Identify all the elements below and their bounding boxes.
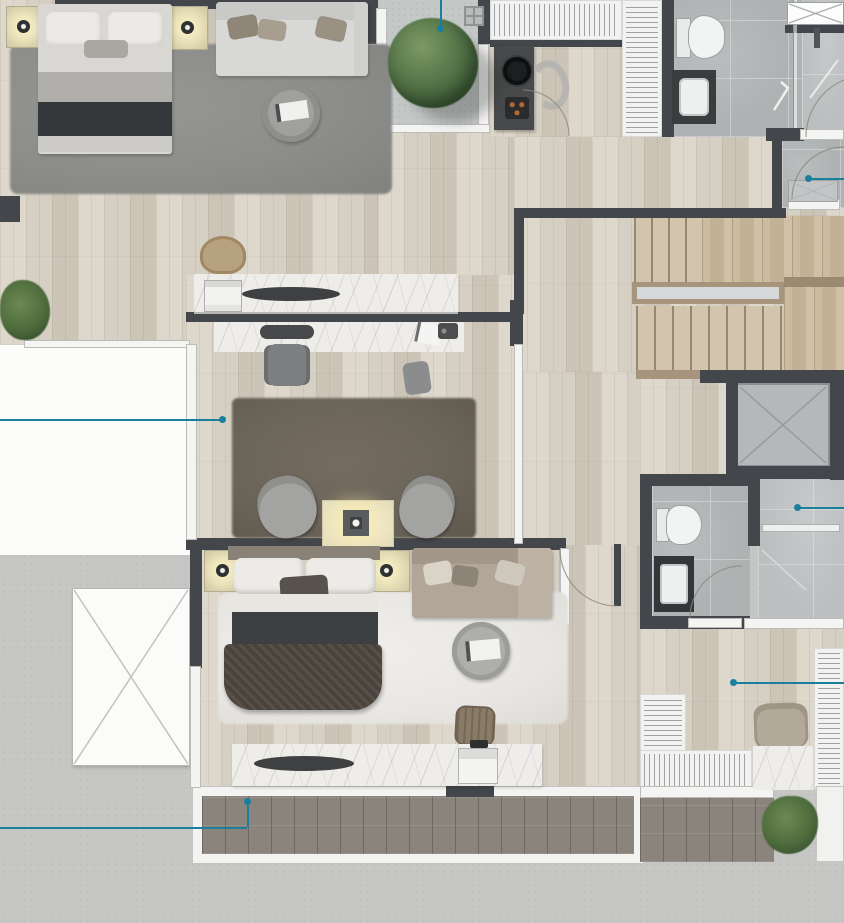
toilet-bowl-bath-1 xyxy=(688,15,725,59)
washbasin-bath-1 xyxy=(679,78,709,116)
balcony-2-white-ledge xyxy=(816,786,844,862)
closet-2-horiz-rack xyxy=(640,750,752,790)
stair-railing-right xyxy=(784,277,844,287)
void-white-area xyxy=(0,345,190,555)
table-lamp-bedroom-2 xyxy=(343,510,369,536)
wall-shelf-top-right xyxy=(787,2,844,25)
callout-hotspot-balcony-bedroom-3[interactable] xyxy=(244,798,251,805)
wall-elevator-top xyxy=(700,370,844,383)
window-bedroom-2-left xyxy=(186,344,197,540)
desk-chair-bedroom-2 xyxy=(268,344,306,386)
bed-3-mattress-band xyxy=(232,612,378,646)
elevator-lobby-floor xyxy=(640,372,738,476)
callout-hotspot-planter-terrace[interactable] xyxy=(437,25,444,32)
wall-bedroom-3-left xyxy=(190,542,202,668)
callout-hotspot-walk-in-closet-2[interactable] xyxy=(730,679,737,686)
window-bedroom-3-left xyxy=(190,666,201,788)
table-lamp-icon xyxy=(181,21,194,34)
wall-elevator-right xyxy=(830,370,844,480)
floor-drain-terrace xyxy=(464,6,484,26)
hanging-clothes-icon xyxy=(818,652,840,784)
stair-upper-landing xyxy=(702,216,844,286)
bed-1-foot-band xyxy=(38,136,172,152)
callout-hotspot-bedroom-2[interactable] xyxy=(219,416,226,423)
side-chair-bedroom-2 xyxy=(402,360,432,395)
closet-2-right-rack xyxy=(814,648,844,788)
appliance-hall-counter xyxy=(204,280,242,312)
stair-glass-railing xyxy=(632,282,784,304)
cup-tray-closet-1 xyxy=(505,97,529,119)
bathroom-2-shower-floor xyxy=(758,474,844,620)
stair-upper-flight xyxy=(634,216,702,284)
hanging-clothes-icon xyxy=(626,4,658,133)
door-leaf-bedroom-3 xyxy=(614,544,621,606)
shower-bar-bath-2 xyxy=(762,524,840,532)
window-balcony-bottom xyxy=(380,124,490,133)
sofa-1-arm-right xyxy=(354,2,368,76)
sill-shower-2-bottom xyxy=(744,618,844,629)
hanging-clothes-icon xyxy=(494,4,618,36)
wall-bedroom-2-corner xyxy=(510,300,523,346)
wall-elevator-left xyxy=(726,383,738,471)
door-sill-bathroom-2 xyxy=(688,618,742,628)
stair-lower-flight xyxy=(636,306,784,372)
sofa-3-chaise xyxy=(518,548,552,618)
rattan-chair-hall xyxy=(200,236,246,274)
table-lamp-icon xyxy=(380,564,393,577)
nightstand-lamp-left-b1 xyxy=(6,6,42,48)
vanity-sink-bedroom-2 xyxy=(260,325,314,339)
corridor-floor xyxy=(523,372,640,550)
shower-tray-gray-room xyxy=(788,180,838,202)
elevator-cab xyxy=(736,383,830,467)
floor-plan-canvas xyxy=(0,0,844,923)
wall-left-stub xyxy=(0,196,20,222)
wall-hall-vertical xyxy=(514,208,524,314)
hanging-clothes-icon xyxy=(644,754,748,786)
bed-1-duvet xyxy=(38,72,172,104)
coffee-table-3-book xyxy=(465,639,501,662)
closet-1-side-rack xyxy=(622,0,662,137)
perfume-bottles-bedroom-2 xyxy=(438,323,458,339)
window-void-top xyxy=(24,340,190,348)
serving-tray-hall xyxy=(242,287,340,301)
wall-stair-hall-top xyxy=(514,208,786,218)
balcony-2-deck xyxy=(640,798,774,862)
wall-bathroom-2-left xyxy=(640,474,652,628)
callout-hotspot-bathroom-2-shower[interactable] xyxy=(794,504,801,511)
window-bedroom-2-right xyxy=(514,344,523,544)
bed-3-sheet-band xyxy=(230,594,378,614)
marble-floor-closet-2 xyxy=(753,746,813,790)
serving-tray-bedroom-3 xyxy=(254,756,354,771)
balcony-bedroom-3-deck xyxy=(202,796,634,854)
phone-bedroom-3 xyxy=(470,740,488,748)
skylight-hatch xyxy=(72,588,190,766)
bed-3-blanket xyxy=(224,644,382,710)
wall-bathroom-2-top xyxy=(640,474,760,486)
stool-closet-1 xyxy=(503,57,531,85)
door-sill-bath-1 xyxy=(800,129,844,140)
bed-1-dark-throw xyxy=(38,102,172,138)
washbasin-bath-2 xyxy=(660,564,688,604)
house-plant-hall xyxy=(0,280,50,340)
wall-bathroom-2-divider xyxy=(748,474,760,546)
laptop-bedroom-3 xyxy=(458,748,498,784)
bed-1-accent-pillow xyxy=(84,40,128,58)
faucet-shower-tr xyxy=(814,28,820,48)
closet-1-top-rack xyxy=(490,0,622,40)
callout-hotspot-shower-room[interactable] xyxy=(805,175,812,182)
stair-side-landing xyxy=(784,286,844,372)
sofa-3-pillow-b xyxy=(451,564,480,587)
toilet-bowl-bath-2 xyxy=(666,505,702,545)
table-lamp-icon xyxy=(216,564,229,577)
armchair-closet-2 xyxy=(756,702,806,750)
nightstand-lamp-right-b1 xyxy=(168,6,208,50)
tree-canopy xyxy=(388,18,478,108)
table-lamp-icon xyxy=(17,20,30,33)
sofa-1-pillow-b xyxy=(257,18,288,42)
wall-shower-room-left xyxy=(772,137,782,208)
